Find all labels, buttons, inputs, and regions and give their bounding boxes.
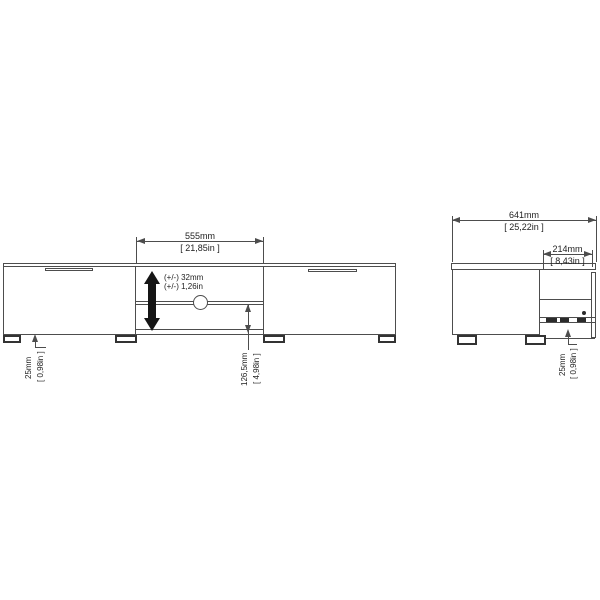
side-depth-dim-label-in: [ 25,22in ] <box>452 222 596 232</box>
front-width-dim-label-in: [ 21,85in ] <box>137 243 263 253</box>
side-leg-dim-label-mm: 25mm <box>558 354 567 376</box>
front-shelf-dim-label-in: [ 4,98in ] <box>252 353 261 384</box>
side-back-shelf-line <box>540 299 591 300</box>
side-back-dim-label-in: [ 8,43in ] <box>535 256 600 266</box>
side-leg-dim-tick <box>568 344 577 345</box>
front-width-dim-label-mm: 555mm <box>137 231 263 241</box>
front-leg-dim-tick <box>35 347 46 348</box>
front-cable-hole <box>193 295 208 310</box>
side-back-panel <box>591 272 596 338</box>
front-leg-dim-label-mm: 25mm <box>24 357 33 379</box>
front-leg-2 <box>115 335 137 343</box>
front-shelf-dim-label-mm: 126,5mm <box>240 353 249 386</box>
front-divider-right <box>263 267 264 335</box>
side-leg-2 <box>525 335 546 345</box>
front-right-door-groove <box>308 269 357 272</box>
technical-drawing-canvas: 555mm [ 21,85in ] (+/-) 32mm (+/-) 1,26i… <box>0 0 600 600</box>
side-rail-bottom-line <box>540 322 595 323</box>
adjust-note-line2: (+/-) 1,26in <box>164 282 203 291</box>
adjust-note-line1: (+/-) 32mm <box>164 273 203 282</box>
front-leg-dim-label-in: [ 0,98in ] <box>36 351 45 382</box>
front-width-ext-right <box>263 237 264 263</box>
side-depth-dim-label-mm: 641mm <box>452 210 596 220</box>
height-adjust-arrow-shaft <box>148 283 156 319</box>
height-adjust-arrow-down-icon <box>144 318 160 331</box>
front-shelf-dim-arrow-down-icon <box>245 325 251 333</box>
front-shelf-dim-arrow-up-icon <box>245 304 251 312</box>
front-leg-3 <box>263 335 285 343</box>
side-leg-1 <box>457 335 477 345</box>
side-rail-bolt-icon <box>582 311 586 315</box>
side-leg-dim-label-in: [ 0,98in ] <box>569 348 578 379</box>
side-back-dim-label-mm: 214mm <box>543 244 592 254</box>
side-body <box>452 270 540 335</box>
front-leg-4 <box>378 335 396 343</box>
front-leg-1 <box>3 335 21 343</box>
front-left-door-groove <box>45 268 93 271</box>
front-top-panel-line <box>3 266 396 267</box>
